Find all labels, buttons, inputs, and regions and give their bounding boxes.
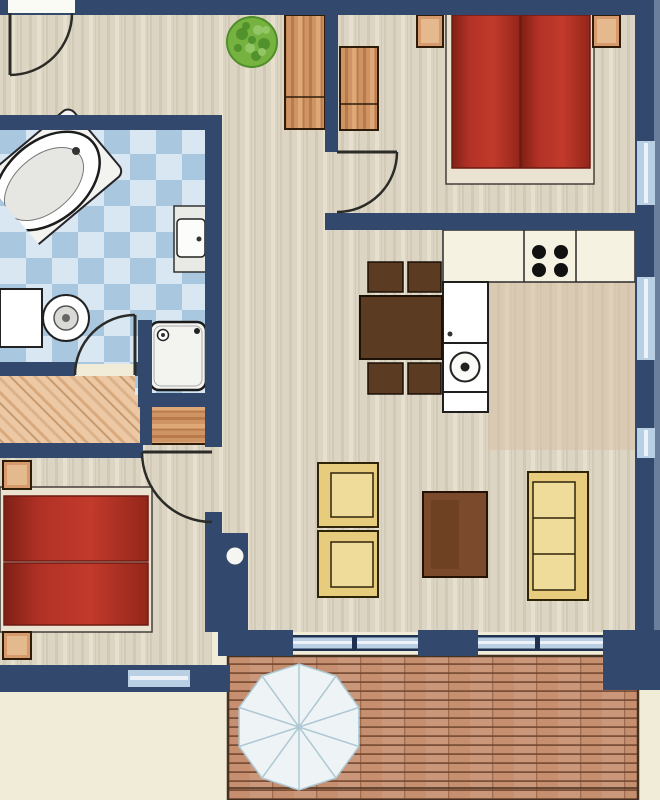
potted-plant-leaf-1 bbox=[253, 25, 263, 35]
dining-table bbox=[360, 296, 442, 359]
dining-chair-2 bbox=[408, 262, 441, 292]
toilet-drain bbox=[62, 314, 70, 322]
sofa-cushions bbox=[533, 482, 575, 590]
potted-plant-leaf-4 bbox=[234, 44, 242, 52]
window-bedroom1-pane bbox=[644, 143, 648, 203]
entrance-threshold bbox=[8, 0, 75, 13]
hall-wardrobe bbox=[285, 15, 325, 129]
floor-doorway-gap bbox=[205, 445, 222, 515]
stove-burner-1 bbox=[532, 245, 546, 259]
potted-plant-leaf-7 bbox=[242, 22, 250, 30]
shower-head-dot bbox=[161, 333, 165, 337]
kitchen-cabinet bbox=[443, 392, 488, 412]
stove-burner-3 bbox=[532, 263, 546, 277]
wall-kitchen-top bbox=[325, 213, 635, 230]
patio-door-1-handle bbox=[352, 637, 357, 649]
potted-plant-leaf-8 bbox=[248, 36, 256, 44]
floor-closet bbox=[0, 376, 140, 445]
wall-closet-niche bbox=[140, 400, 152, 445]
armchair-1-cushion bbox=[331, 473, 373, 517]
plan-layer bbox=[0, 0, 660, 800]
wall-bedroom2-bottom bbox=[0, 665, 230, 692]
wall-bedroom1-left bbox=[325, 10, 338, 152]
bedroom2-duvet-bottom bbox=[4, 563, 148, 625]
bedroom2-wardrobe bbox=[150, 405, 206, 444]
potted-plant-leaf-3 bbox=[245, 43, 255, 53]
bedroom1-duvet-right bbox=[521, 15, 590, 168]
stove-burner-2 bbox=[554, 245, 568, 259]
floor-kitchen-tint bbox=[488, 282, 635, 450]
wall-bath-top bbox=[0, 115, 222, 130]
stove-burner-4 bbox=[554, 263, 568, 277]
coffee-table-grain bbox=[431, 500, 459, 569]
potted-plant-leaf-9 bbox=[258, 48, 266, 56]
wall-living-left bbox=[205, 512, 222, 632]
floor-plan-canvas bbox=[0, 0, 660, 800]
bathtub-faucet bbox=[72, 147, 80, 155]
wall-pier-middle bbox=[418, 630, 478, 656]
patio-door-2-frame-top bbox=[478, 635, 603, 638]
sink-drain bbox=[461, 363, 470, 372]
floor-plan bbox=[0, 0, 660, 800]
bedroom1-nightstand-right-top bbox=[597, 19, 616, 43]
potted-plant-leaf-6 bbox=[262, 26, 270, 34]
bedroom1-wardrobe bbox=[340, 47, 378, 130]
washbasin-tap bbox=[197, 237, 202, 242]
potted-plant-leaf-2 bbox=[258, 38, 270, 50]
terrace-umbrella-pole bbox=[296, 724, 302, 730]
wall-bath-right bbox=[205, 115, 222, 447]
patio-door-2-pane bbox=[478, 641, 603, 644]
wall-pier-corner bbox=[603, 630, 660, 690]
bedroom2-nightstand-bottom-top bbox=[7, 636, 27, 655]
dining-chair-3 bbox=[368, 363, 403, 394]
patio-door-2-handle bbox=[535, 637, 540, 649]
fridge-handle bbox=[448, 332, 453, 337]
wall-pier-left bbox=[218, 630, 293, 656]
bedroom2-nightstand-top-top bbox=[7, 465, 27, 485]
wall-bedroom2-top bbox=[0, 443, 143, 458]
wall-shower-left bbox=[138, 320, 152, 395]
dining-chair-1 bbox=[368, 262, 403, 292]
toilet-tank bbox=[0, 289, 42, 347]
bedroom1-nightstand-left-top bbox=[421, 19, 439, 43]
dining-chair-4 bbox=[408, 363, 441, 394]
patio-door-2-frame-bottom bbox=[478, 649, 603, 652]
chimney-flue bbox=[227, 548, 244, 565]
window-kitchen-pane bbox=[644, 279, 648, 358]
wall-bath-bottom-left bbox=[0, 362, 75, 376]
armchair-2-cushion bbox=[331, 542, 373, 587]
window-bedroom2-pane bbox=[130, 676, 188, 680]
window-living-pane bbox=[644, 430, 648, 456]
bedroom2-duvet-top bbox=[4, 496, 148, 561]
shower-drain bbox=[194, 328, 200, 334]
bedroom1-duvet-left bbox=[452, 15, 520, 168]
